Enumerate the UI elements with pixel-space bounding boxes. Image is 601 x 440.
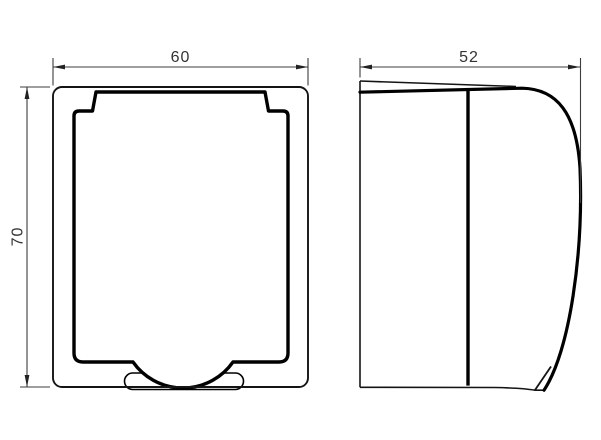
dimension-label-front-height: 70 [10,227,27,247]
dimension-label-front-width: 60 [171,49,191,66]
technical-drawing: 60 70 52 [0,0,601,440]
drawing-canvas: 60 70 52 [0,0,601,440]
front-view [53,87,308,390]
front-lid-outline [74,92,288,388]
dimension-label-side-depth: 52 [459,49,479,66]
